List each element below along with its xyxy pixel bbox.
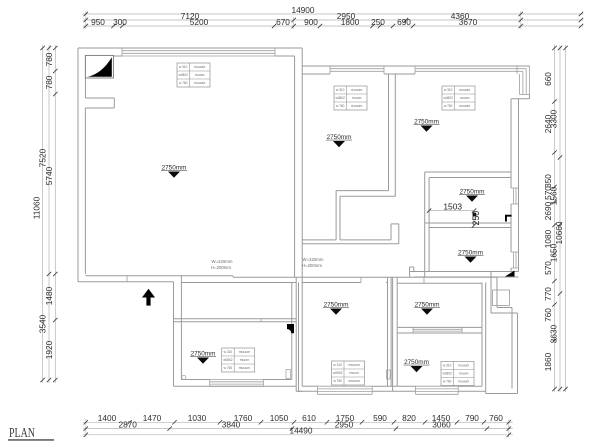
svg-text:PLAN: PLAN <box>9 425 35 440</box>
svg-text:3060: 3060 <box>432 419 451 429</box>
svg-text:1860: 1860 <box>543 352 553 371</box>
svg-text:660: 660 <box>543 72 553 86</box>
svg-text:w 760: w 760 <box>444 104 453 108</box>
svg-text:2950: 2950 <box>335 419 354 429</box>
svg-text:muuum: muuum <box>194 81 205 85</box>
svg-text:1503: 1503 <box>443 201 462 211</box>
svg-text:muuum: muuum <box>458 364 469 368</box>
svg-text:H=200mm: H=200mm <box>211 265 231 270</box>
svg-text:780: 780 <box>44 52 54 66</box>
svg-text:muum: muum <box>460 96 470 100</box>
svg-text:11060: 11060 <box>31 196 41 219</box>
svg-text:7520: 7520 <box>38 148 48 167</box>
svg-text:w 310: w 310 <box>333 363 342 367</box>
svg-text:1470: 1470 <box>143 413 162 423</box>
svg-text:w0802: w0802 <box>443 96 453 100</box>
svg-text:w 760: w 760 <box>333 379 342 383</box>
svg-text:w0802: w0802 <box>223 358 233 362</box>
svg-text:muuum: muuum <box>459 88 470 92</box>
svg-text:w 760: w 760 <box>336 104 345 108</box>
svg-text:w0802: w0802 <box>335 96 345 100</box>
svg-text:muuum: muuum <box>239 366 250 370</box>
svg-text:3540: 3540 <box>38 314 48 333</box>
svg-text:670: 670 <box>276 17 290 27</box>
svg-text:w 310: w 310 <box>224 350 233 354</box>
svg-text:770: 770 <box>543 287 553 301</box>
svg-text:1030: 1030 <box>188 413 207 423</box>
svg-text:3300: 3300 <box>549 109 559 128</box>
svg-text:760: 760 <box>489 413 503 423</box>
svg-text:2870: 2870 <box>118 419 137 429</box>
svg-text:5740: 5740 <box>44 166 54 185</box>
svg-text:590: 590 <box>373 413 387 423</box>
svg-text:690: 690 <box>397 17 411 27</box>
svg-text:w0802: w0802 <box>442 372 452 376</box>
svg-text:3670: 3670 <box>459 17 478 27</box>
svg-text:W=220mm: W=220mm <box>303 257 324 262</box>
svg-text:900: 900 <box>304 17 318 27</box>
svg-text:250: 250 <box>471 211 481 226</box>
svg-text:w 310: w 310 <box>336 88 345 92</box>
svg-text:muuum: muuum <box>351 104 362 108</box>
svg-text:w0802: w0802 <box>178 73 188 77</box>
svg-text:1800: 1800 <box>341 17 360 27</box>
svg-text:790: 790 <box>465 413 479 423</box>
svg-text:w 310: w 310 <box>179 65 188 69</box>
svg-text:350: 350 <box>543 174 553 188</box>
svg-text:14900: 14900 <box>291 5 314 15</box>
svg-text:1050: 1050 <box>270 413 289 423</box>
svg-text:muum: muum <box>195 73 205 77</box>
svg-text:muum: muum <box>349 371 359 375</box>
svg-text:muuum: muuum <box>194 65 205 69</box>
svg-text:muuum: muuum <box>351 88 362 92</box>
svg-text:w 310: w 310 <box>443 364 452 368</box>
svg-text:610: 610 <box>302 413 316 423</box>
svg-text:1480: 1480 <box>44 286 54 305</box>
svg-text:10660: 10660 <box>554 221 564 244</box>
svg-text:muuum: muuum <box>458 380 469 384</box>
svg-text:w0802: w0802 <box>333 371 343 375</box>
svg-text:H=200mm: H=200mm <box>302 263 322 268</box>
svg-text:muum: muum <box>352 96 362 100</box>
svg-text:5200: 5200 <box>190 17 209 27</box>
svg-text:820: 820 <box>402 413 416 423</box>
svg-text:w 760: w 760 <box>179 81 188 85</box>
svg-text:muuum: muuum <box>349 379 360 383</box>
svg-text:muuum: muuum <box>349 363 360 367</box>
svg-text:muuum: muuum <box>459 104 470 108</box>
svg-text:950: 950 <box>91 17 105 27</box>
svg-text:W=220mm: W=220mm <box>212 259 233 264</box>
svg-text:1560: 1560 <box>549 186 559 205</box>
svg-text:780: 780 <box>44 75 54 89</box>
svg-text:w 760: w 760 <box>443 380 452 384</box>
svg-text:14490: 14490 <box>289 426 312 436</box>
svg-text:muum: muum <box>240 358 250 362</box>
svg-text:muum: muum <box>459 372 469 376</box>
svg-text:1920: 1920 <box>44 340 54 359</box>
svg-text:1400: 1400 <box>98 413 117 423</box>
svg-text:250: 250 <box>371 17 385 27</box>
svg-text:3630: 3630 <box>549 324 559 343</box>
svg-text:w 310: w 310 <box>444 88 453 92</box>
svg-text:300: 300 <box>113 17 127 27</box>
svg-text:muuum: muuum <box>239 350 250 354</box>
svg-text:1650: 1650 <box>549 243 559 262</box>
svg-text:760: 760 <box>543 308 553 322</box>
svg-text:3840: 3840 <box>222 419 241 429</box>
svg-text:w 760: w 760 <box>224 366 233 370</box>
